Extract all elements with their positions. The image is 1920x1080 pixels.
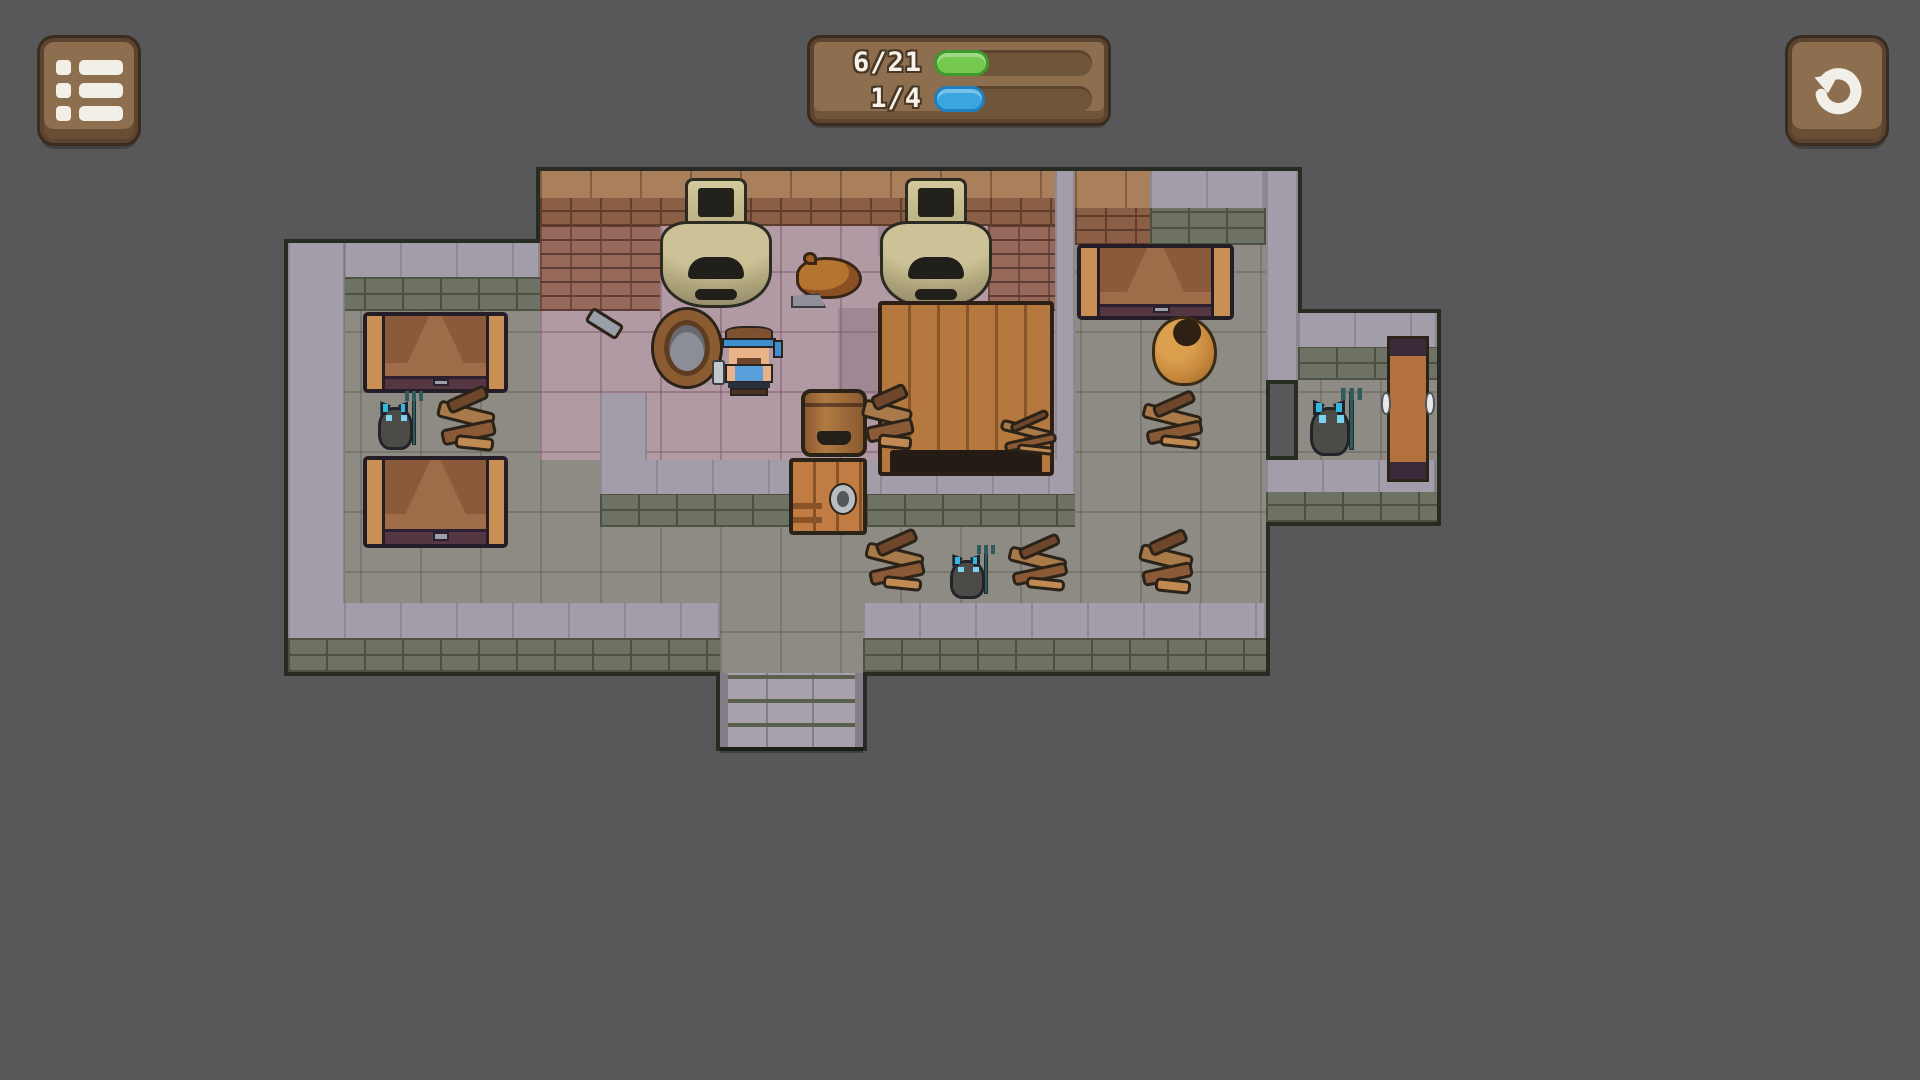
wood-debris[interactable]: [862, 531, 932, 597]
water-basin: [654, 310, 720, 386]
counter-row-wood: 6/21: [826, 48, 1092, 78]
rat-enemy[interactable]: [1303, 388, 1363, 460]
roast-pig: [791, 251, 867, 308]
clay-pot: [1149, 311, 1220, 389]
stone-wall: [288, 638, 720, 672]
menu-list-icon: [56, 60, 123, 121]
restart-icon: [1810, 64, 1864, 118]
stone-wall: [863, 603, 1266, 638]
player-character[interactable]: [720, 326, 778, 396]
brick-wall: [1075, 171, 1150, 208]
wood-debris[interactable]: [1139, 393, 1210, 455]
menu-button[interactable]: [40, 38, 138, 143]
stairs-exit[interactable]: [720, 673, 863, 747]
wood-debris[interactable]: [1005, 536, 1075, 596]
kitchen-floor-dark-tile: [838, 308, 878, 394]
progress-track: [934, 50, 1092, 76]
wood-debris[interactable]: [860, 385, 920, 457]
stone-wall: [288, 603, 720, 638]
dungeon-map[interactable]: [0, 0, 1920, 1080]
stone-wall: [1266, 171, 1298, 380]
counter-label: 6/21: [826, 48, 922, 78]
stone-floor[interactable]: [540, 460, 600, 603]
wood-debris[interactable]: [1136, 531, 1200, 599]
barrel: [801, 389, 867, 457]
ladder-door[interactable]: [1387, 336, 1429, 482]
brick-wall: [1075, 208, 1150, 245]
objectives-panel: 6/21 1/4: [810, 38, 1108, 123]
bed: [363, 456, 508, 548]
stone-wall: [600, 393, 647, 460]
progress-track: [934, 86, 1092, 112]
game-screen: { "app": {"background": "#58585a"}, "hud…: [0, 0, 1920, 1080]
furnace: [880, 178, 992, 308]
wood-debris[interactable]: [997, 413, 1063, 459]
bed: [363, 312, 508, 393]
progress-fill-green: [934, 50, 989, 76]
stone-wall: [863, 638, 1266, 672]
counter-label: 1/4: [826, 84, 922, 114]
progress-fill-blue: [934, 86, 985, 112]
wooden-door[interactable]: [789, 458, 867, 535]
stone-floor[interactable]: [1200, 460, 1266, 603]
bed: [1077, 244, 1234, 320]
restart-button[interactable]: [1788, 38, 1886, 143]
wood-debris[interactable]: [434, 388, 503, 457]
stone-wall: [1266, 492, 1437, 522]
stone-floor[interactable]: [720, 603, 863, 673]
rat-enemy[interactable]: [372, 391, 424, 454]
counter-row-rats: 1/4: [826, 84, 1092, 114]
stone-wall: [288, 243, 345, 603]
rat-enemy[interactable]: [944, 545, 996, 602]
stone-wall: [1150, 208, 1266, 245]
furnace: [660, 178, 772, 308]
broken-sled[interactable]: [538, 298, 630, 392]
brick-wall: [988, 226, 1055, 311]
stone-wall: [1150, 171, 1266, 208]
stone-floor[interactable]: [1075, 460, 1200, 527]
